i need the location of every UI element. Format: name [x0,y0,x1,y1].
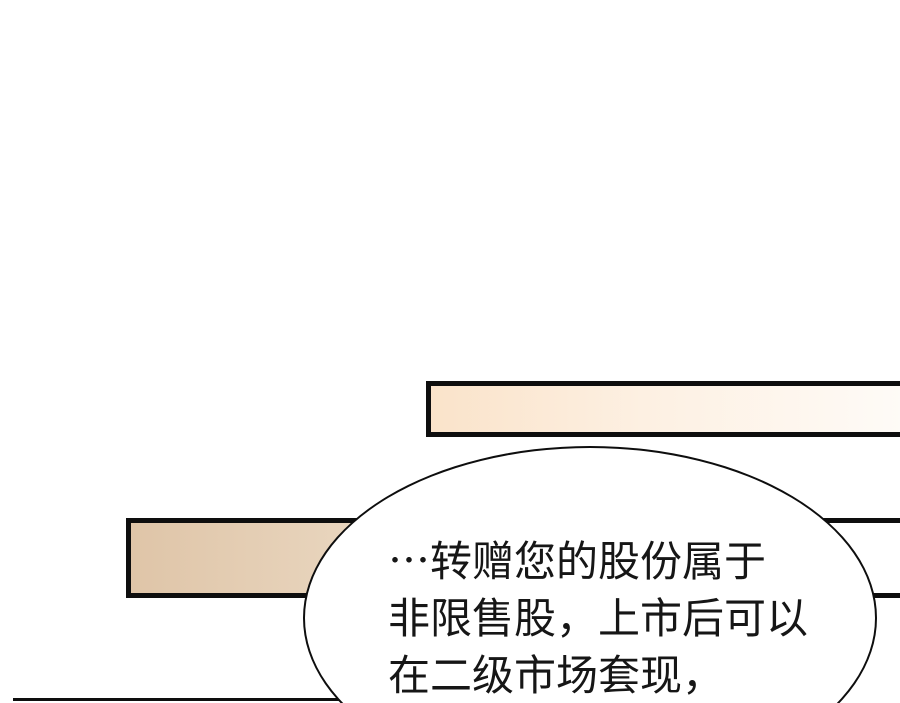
speech-text-line-3: 在二级市场套现， [388,647,808,703]
speech-text-line-1: ⋯转赠您的股份属于 [388,533,808,590]
comic-panel: ⋯转赠您的股份属于 非限售股，上市后可以 在二级市场套现， [0,0,900,703]
speech-text: ⋯转赠您的股份属于 非限售股，上市后可以 在二级市场套现， [388,533,808,703]
top-gradient-bar [426,381,900,437]
speech-text-line-2: 非限售股，上市后可以 [388,590,808,647]
